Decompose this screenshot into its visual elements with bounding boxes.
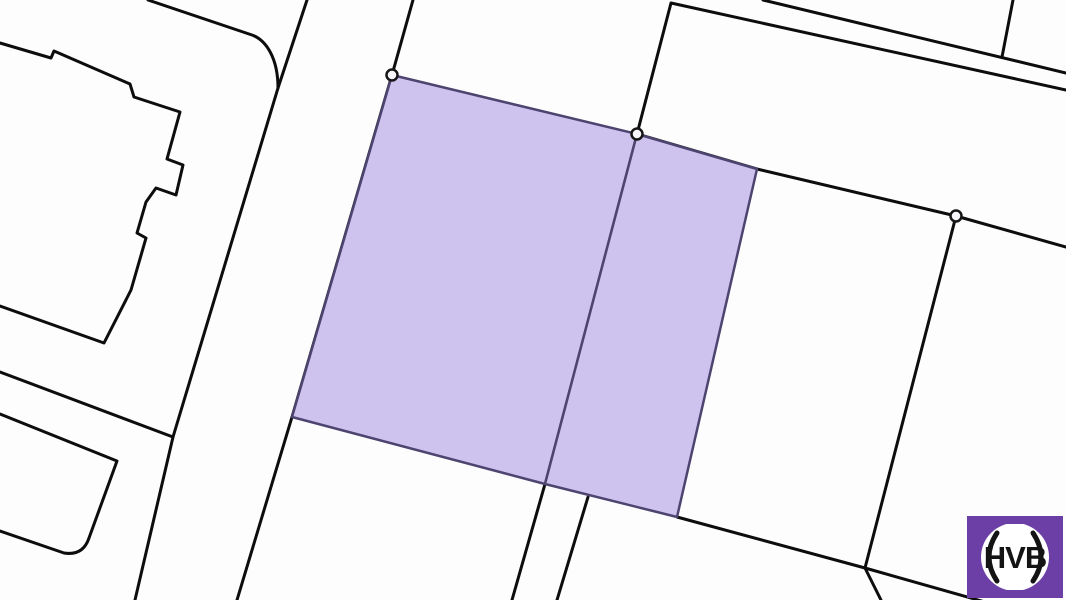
- vertex-marker-2[interactable]: [632, 129, 643, 140]
- vertex-marker-1[interactable]: [387, 70, 398, 81]
- logo-bottom-notch: [1003, 590, 1027, 598]
- map-viewport[interactable]: HVB: [0, 0, 1066, 600]
- parcel-map: [0, 0, 1066, 600]
- logo-text: HVB: [984, 540, 1046, 575]
- logo-top-notch: [1003, 516, 1027, 524]
- hvb-logo: HVB: [967, 516, 1063, 598]
- vertex-marker-3[interactable]: [951, 211, 962, 222]
